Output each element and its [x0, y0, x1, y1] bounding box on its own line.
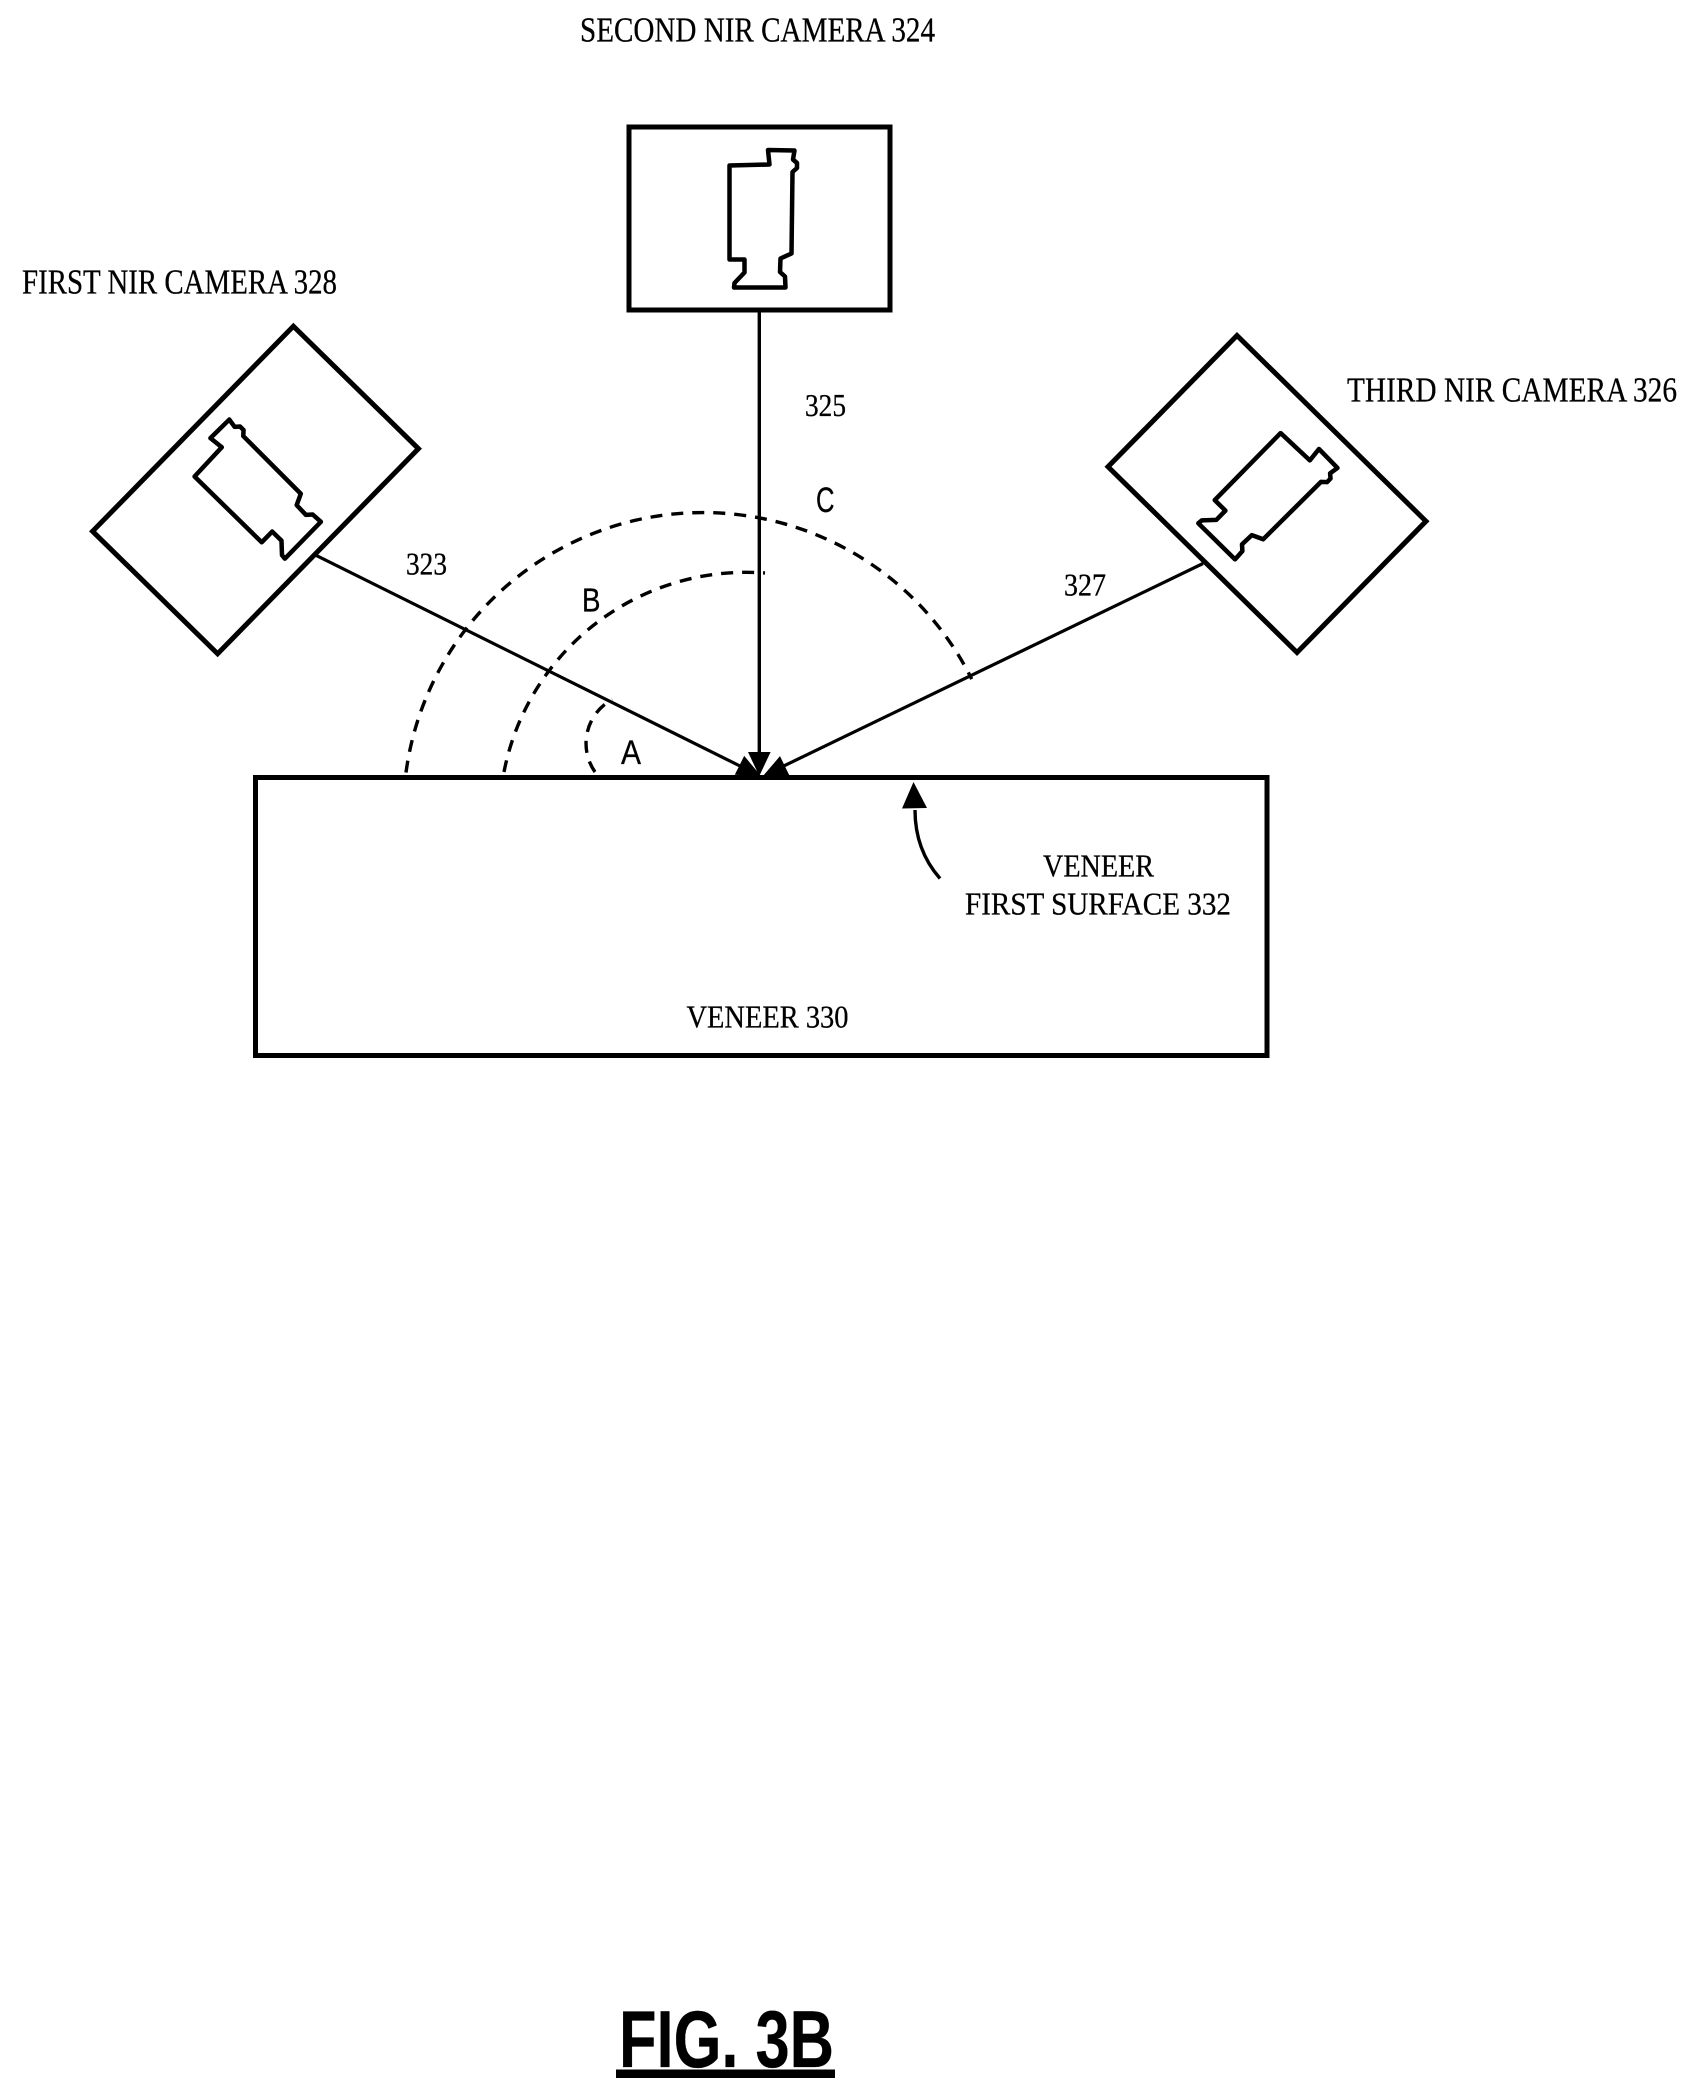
- svg-text:B: B: [582, 582, 601, 619]
- svg-text:327: 327: [1064, 567, 1106, 603]
- svg-text:SECOND NIR CAMERA 324: SECOND NIR CAMERA 324: [580, 11, 935, 50]
- svg-text:VENEER: VENEER: [1043, 848, 1155, 884]
- svg-text:FIRST NIR CAMERA 328: FIRST NIR CAMERA 328: [22, 263, 337, 302]
- svg-text:C: C: [816, 481, 835, 520]
- svg-text:325: 325: [805, 387, 846, 423]
- svg-text:VENEER 330: VENEER 330: [687, 999, 849, 1035]
- svg-text:FIRST SURFACE 332: FIRST SURFACE 332: [965, 886, 1231, 922]
- svg-text:A: A: [621, 734, 641, 772]
- svg-text:THIRD NIR CAMERA 326: THIRD NIR CAMERA 326: [1347, 371, 1677, 410]
- svg-text:323: 323: [406, 546, 447, 582]
